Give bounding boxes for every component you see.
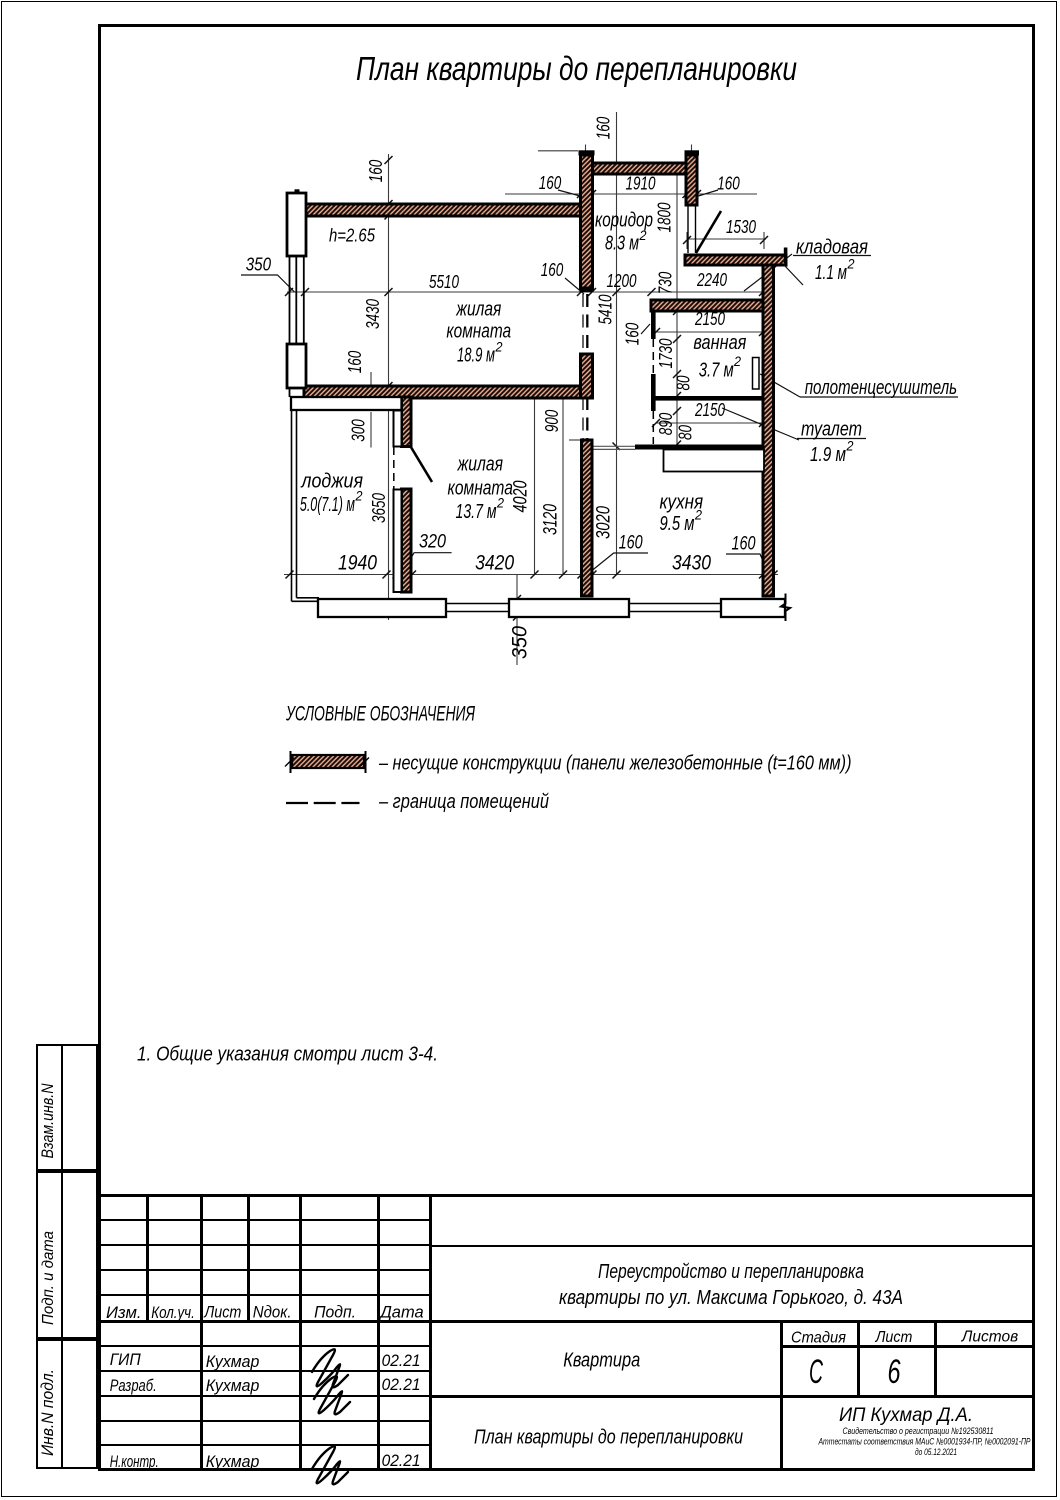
svg-text:18.9 м: 18.9 м <box>457 345 495 367</box>
svg-text:160: 160 <box>366 160 386 183</box>
svg-text:160: 160 <box>619 533 643 554</box>
svg-text:3020: 3020 <box>594 506 615 539</box>
svg-text:80: 80 <box>674 376 694 391</box>
svg-text:2: 2 <box>495 340 503 355</box>
svg-text:5510: 5510 <box>429 272 459 292</box>
svg-text:до 05.12.2021: до 05.12.2021 <box>915 1447 957 1457</box>
svg-text:Аттестаты соответствия МАиС №0: Аттестаты соответствия МАиС №0001934-ПР,… <box>818 1437 1031 1447</box>
svg-text:4020: 4020 <box>511 480 532 512</box>
svg-text:5410: 5410 <box>596 295 616 325</box>
svg-text:3650: 3650 <box>369 493 389 523</box>
svg-text:3.7 м: 3.7 м <box>699 360 734 382</box>
svg-text:2150: 2150 <box>694 309 725 329</box>
svg-text:900: 900 <box>542 410 562 433</box>
svg-text:350: 350 <box>246 255 271 275</box>
svg-text:2: 2 <box>694 508 702 523</box>
svg-text:План квартиры до перепланировк: План квартиры до перепланировки <box>474 1427 743 1449</box>
svg-text:ГИП: ГИП <box>110 1350 142 1369</box>
svg-text:1.1 м: 1.1 м <box>815 262 847 284</box>
svg-text:– граница помещений: – граница помещений <box>378 791 549 813</box>
svg-text:160: 160 <box>594 117 614 140</box>
svg-text:2: 2 <box>846 439 854 454</box>
svg-text:Дата: Дата <box>378 1303 423 1322</box>
svg-text:Лист: Лист <box>875 1329 913 1346</box>
svg-text:жилая: жилая <box>457 454 504 476</box>
svg-text:160: 160 <box>345 351 365 374</box>
svg-text:2: 2 <box>496 496 504 511</box>
svg-text:h=2.65: h=2.65 <box>329 226 376 246</box>
svg-text:5.0(7.1) м: 5.0(7.1) м <box>300 494 355 516</box>
svg-text:Н.контр.: Н.контр. <box>110 1452 159 1471</box>
svg-text:Подп.: Подп. <box>314 1303 356 1322</box>
svg-text:кладовая: кладовая <box>796 237 868 259</box>
svg-text:квартиры по ул. Максима Горько: квартиры по ул. Максима Горького, д. 43А <box>559 1287 903 1309</box>
svg-text:1800: 1800 <box>655 203 675 233</box>
svg-text:С: С <box>809 1353 823 1391</box>
svg-text:2: 2 <box>847 257 855 272</box>
svg-text:Взам.инв.N: Взам.инв.N <box>38 1083 57 1159</box>
svg-text:Инв.N подл.: Инв.N подл. <box>38 1369 57 1456</box>
svg-text:Квартира: Квартира <box>563 1350 640 1372</box>
svg-text:План квартиры до перепланировк: План квартиры до перепланировки <box>356 50 797 87</box>
svg-text:1730: 1730 <box>656 339 676 369</box>
svg-text:полотенцесушитель: полотенцесушитель <box>805 377 957 399</box>
svg-text:1. Общие указания смотри лист: 1. Общие указания смотри лист 3-4. <box>137 1044 438 1066</box>
svg-text:жилая: жилая <box>456 299 502 321</box>
svg-text:Кухмар: Кухмар <box>206 1376 260 1395</box>
svg-text:1910: 1910 <box>626 174 656 194</box>
svg-text:160: 160 <box>539 173 562 193</box>
svg-text:3420: 3420 <box>475 552 514 575</box>
svg-text:ИП Кухмар Д.А.: ИП Кухмар Д.А. <box>839 1405 973 1426</box>
svg-text:3430: 3430 <box>363 299 383 329</box>
svg-text:3120: 3120 <box>541 504 562 535</box>
svg-text:2240: 2240 <box>696 270 727 290</box>
svg-text:Кухмар: Кухмар <box>206 1352 260 1371</box>
svg-text:– несущие конструкции (панели: – несущие конструкции (панели железобето… <box>378 753 851 775</box>
svg-text:Свидетельство о регистрации №1: Свидетельство о регистрации №192530811 <box>843 1426 994 1436</box>
svg-text:Стадия: Стадия <box>791 1330 846 1347</box>
svg-text:160: 160 <box>717 174 740 194</box>
svg-text:Лист: Лист <box>204 1303 242 1322</box>
svg-text:УСЛОВНЫЕ ОБОЗНАЧЕНИЯ: УСЛОВНЫЕ ОБОЗНАЧЕНИЯ <box>285 703 475 726</box>
svg-text:3430: 3430 <box>672 552 711 575</box>
svg-text:2150: 2150 <box>694 400 725 420</box>
svg-text:350: 350 <box>509 626 532 659</box>
svg-text:Nдок.: Nдок. <box>253 1303 292 1322</box>
svg-text:1530: 1530 <box>726 217 756 237</box>
svg-text:1.9 м: 1.9 м <box>810 444 846 466</box>
svg-text:Изм.: Изм. <box>106 1303 142 1322</box>
svg-text:туалет: туалет <box>801 419 862 441</box>
svg-text:Разраб.: Разраб. <box>110 1376 157 1395</box>
svg-text:160: 160 <box>541 260 564 280</box>
svg-text:1940: 1940 <box>338 552 377 575</box>
svg-text:02.21: 02.21 <box>382 1351 421 1370</box>
svg-text:890: 890 <box>656 413 676 436</box>
svg-text:2: 2 <box>733 354 741 369</box>
svg-text:ванная: ванная <box>693 332 746 354</box>
svg-text:02.21: 02.21 <box>382 1375 421 1394</box>
svg-text:320: 320 <box>419 532 446 553</box>
svg-text:Кухмар: Кухмар <box>206 1452 260 1471</box>
svg-text:2: 2 <box>355 489 363 504</box>
svg-text:80: 80 <box>676 425 696 440</box>
svg-text:160: 160 <box>732 534 756 555</box>
svg-text:9.5 м: 9.5 м <box>660 513 695 535</box>
svg-text:лоджия: лоджия <box>301 471 364 493</box>
svg-text:Листов: Листов <box>961 1329 1018 1346</box>
svg-text:8.3 м: 8.3 м <box>605 233 639 255</box>
svg-text:300: 300 <box>349 419 369 442</box>
svg-text:Переустройство и перепланировк: Переустройство и перепланировка <box>598 1261 864 1283</box>
svg-text:02.21: 02.21 <box>382 1451 421 1470</box>
svg-text:730: 730 <box>656 272 676 295</box>
svg-text:1200: 1200 <box>607 271 637 291</box>
svg-text:Подп. и дата: Подп. и дата <box>40 1231 57 1325</box>
svg-text:6: 6 <box>888 1353 901 1391</box>
svg-text:2: 2 <box>639 228 647 243</box>
svg-text:Кол.уч.: Кол.уч. <box>151 1303 195 1322</box>
svg-text:13.7 м: 13.7 м <box>456 501 497 523</box>
svg-text:160: 160 <box>623 323 643 346</box>
